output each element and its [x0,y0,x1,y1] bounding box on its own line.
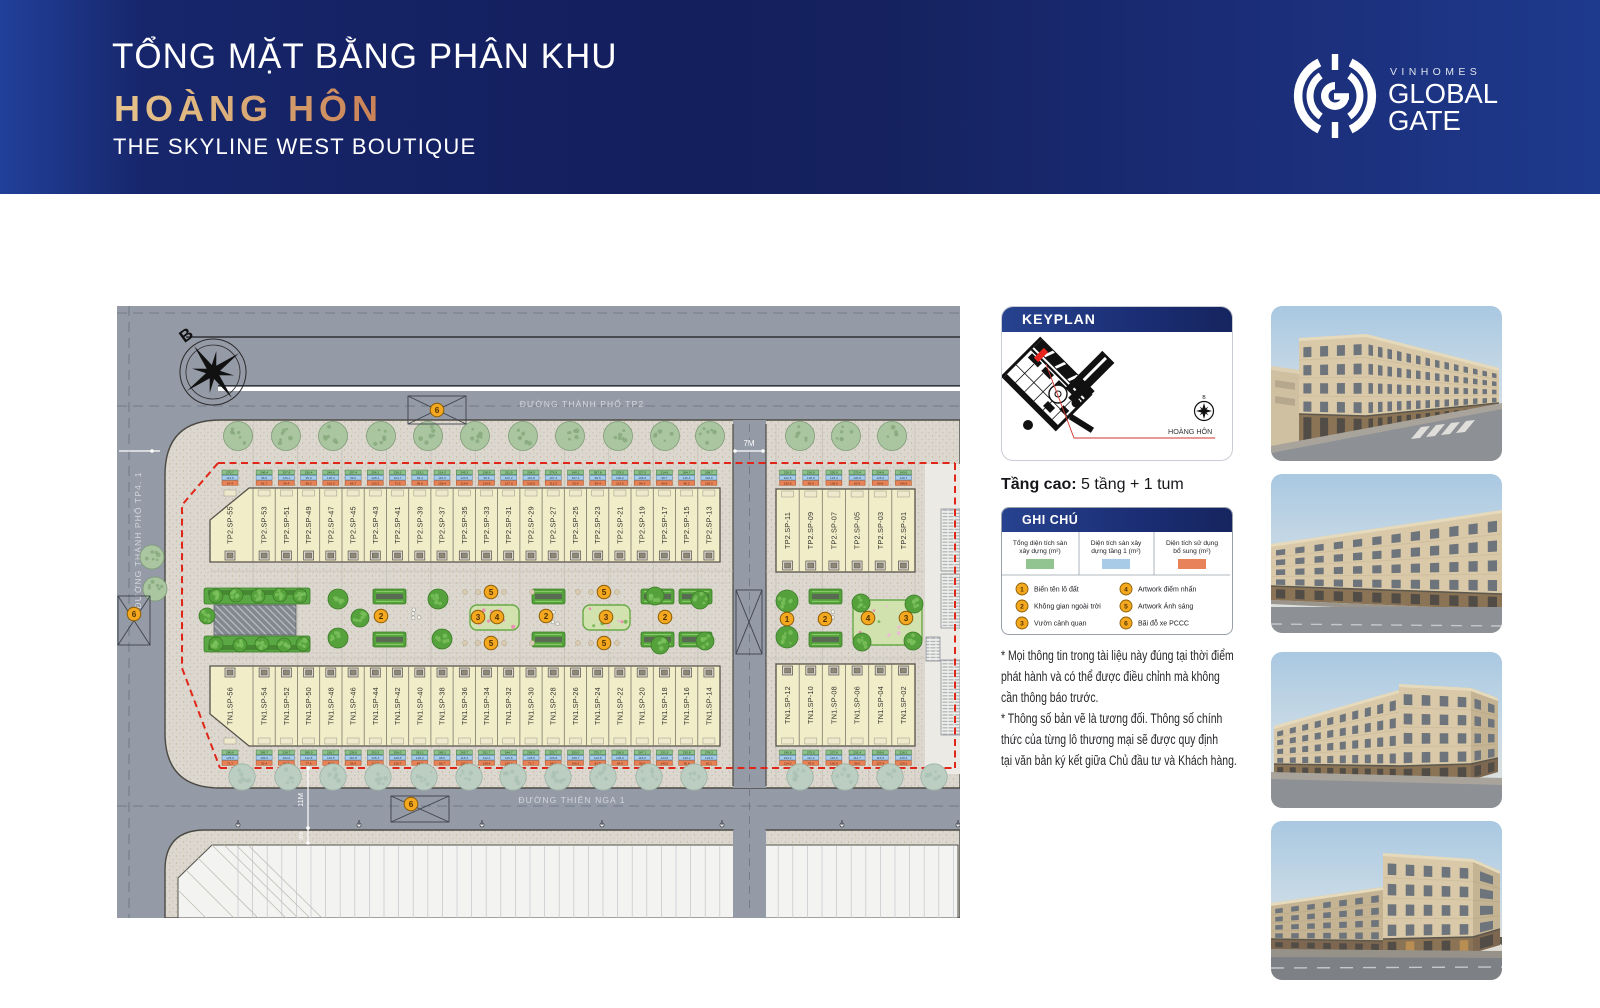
svg-text:TN1.SP-56: TN1.SP-56 [226,687,235,725]
svg-text:270.7: 270.7 [226,471,234,475]
svg-text:112.6: 112.6 [226,476,234,480]
svg-text:237.8: 237.8 [830,751,838,755]
svg-text:118.0: 118.0 [638,756,646,760]
svg-text:118.3: 118.3 [705,481,713,485]
svg-text:99.4: 99.4 [417,476,423,480]
svg-text:123.0: 123.0 [705,756,713,760]
svg-text:267.1: 267.1 [638,751,646,755]
svg-text:TN1.SP-04: TN1.SP-04 [876,686,885,724]
svg-text:246.4: 246.4 [260,471,268,475]
svg-text:128.9: 128.9 [807,476,815,480]
svg-text:243.0: 243.0 [900,471,908,475]
svg-text:133.6: 133.6 [527,481,535,485]
svg-text:TP2.SP-21: TP2.SP-21 [615,506,624,544]
svg-text:TN1.SP-14: TN1.SP-14 [704,687,713,725]
svg-text:66.7: 66.7 [350,481,356,485]
svg-text:TN1.SP-26: TN1.SP-26 [571,687,580,725]
svg-text:115.3: 115.3 [327,481,335,485]
svg-text:210.5: 210.5 [784,471,792,475]
svg-text:TN1.SP-48: TN1.SP-48 [326,687,335,725]
svg-text:2: 2 [823,615,828,624]
svg-text:TP2.SP-29: TP2.SP-29 [527,506,536,544]
svg-text:244.7: 244.7 [505,751,513,755]
svg-text:TN1.SP-16: TN1.SP-16 [682,687,691,725]
svg-text:2: 2 [663,613,668,622]
svg-text:4: 4 [1124,586,1128,593]
svg-text:5: 5 [1124,603,1128,610]
svg-text:TP2.SP-17: TP2.SP-17 [660,506,669,544]
svg-text:255.0: 255.0 [572,751,580,755]
svg-text:98.0: 98.0 [417,481,423,485]
svg-text:230.4: 230.4 [305,471,313,475]
svg-text:100.6: 100.6 [830,761,838,765]
svg-text:Bãi đỗ xe PCCC: Bãi đỗ xe PCCC [1138,618,1189,627]
svg-text:235.8: 235.8 [683,751,691,755]
svg-text:TP2.SP-03: TP2.SP-03 [876,512,885,550]
svg-text:TP2.SP-31: TP2.SP-31 [504,506,513,544]
svg-text:124.6: 124.6 [661,756,669,760]
svg-text:118.9: 118.9 [705,476,713,480]
svg-text:Vườn cảnh quan: Vườn cảnh quan [1034,620,1087,627]
svg-text:102.6: 102.6 [283,756,291,760]
svg-text:111.2: 111.2 [807,756,815,760]
svg-text:Diện tích sử dụng: Diện tích sử dụng [1166,539,1218,547]
svg-text:1: 1 [785,615,790,624]
svg-text:275.0: 275.0 [807,751,815,755]
svg-text:120.2: 120.2 [683,756,691,760]
svg-text:55.4: 55.4 [261,761,267,765]
svg-text:ĐƯỜNG THÀNH PHỐ TP2: ĐƯỜNG THÀNH PHỐ TP2 [520,398,644,409]
svg-text:102.5: 102.5 [784,476,792,480]
svg-text:78.0: 78.0 [808,761,814,765]
svg-text:61.7: 61.7 [261,481,267,485]
svg-text:TP2.SP-11: TP2.SP-11 [783,512,792,549]
svg-text:279.3: 279.3 [616,471,624,475]
svg-text:TN1.SP-34: TN1.SP-34 [482,687,491,725]
svg-text:233.1: 233.1 [416,471,424,475]
svg-text:56.4: 56.4 [283,481,289,485]
svg-text:112.3: 112.3 [549,481,557,485]
svg-text:130.6: 130.6 [784,481,792,485]
svg-text:Diện tích sàn xây: Diện tích sàn xây [1091,540,1142,547]
svg-text:TP2.SP-51: TP2.SP-51 [282,506,291,544]
svg-text:67.4: 67.4 [227,481,233,485]
svg-text:275.4: 275.4 [853,471,861,475]
svg-text:TP2.SP-55: TP2.SP-55 [226,506,235,544]
svg-text:71.7: 71.7 [227,761,233,765]
svg-text:278.3: 278.3 [705,751,713,755]
svg-text:236.9: 236.9 [527,751,535,755]
svg-text:216.7: 216.7 [327,751,335,755]
svg-text:TN1.SP-02: TN1.SP-02 [899,686,908,724]
svg-text:TN1.SP-50: TN1.SP-50 [304,687,313,725]
svg-text:285.9: 285.9 [305,751,313,755]
svg-text:11M: 11M [296,793,305,807]
svg-text:113.7: 113.7 [853,756,861,760]
svg-text:236.0: 236.0 [616,751,624,755]
svg-text:5: 5 [602,588,607,597]
svg-text:118.3: 118.3 [461,756,469,760]
svg-text:128.4: 128.4 [438,481,446,485]
svg-text:TP2.SP-41: TP2.SP-41 [393,506,402,544]
svg-text:98.5: 98.5 [854,761,860,765]
svg-text:TN1.SP-24: TN1.SP-24 [593,687,602,725]
svg-text:Không gian ngoài trời: Không gian ngoài trời [1034,603,1101,610]
svg-text:ĐƯỜNG THÀNH PHỐ TP4. 1: ĐƯỜNG THÀNH PHỐ TP4. 1 [132,471,143,608]
svg-text:261.1: 261.1 [416,751,424,755]
svg-text:113.8: 113.8 [594,756,602,760]
svg-text:136.6: 136.6 [830,481,838,485]
svg-text:TP2.SP-05: TP2.SP-05 [853,512,862,550]
svg-text:5: 5 [489,639,494,648]
svg-text:285.7: 285.7 [260,751,268,755]
svg-text:126.3: 126.3 [371,756,379,760]
svg-text:77.6: 77.6 [306,761,312,765]
svg-text:128.7: 128.7 [394,761,402,765]
svg-text:5: 5 [602,639,607,648]
svg-text:TN1.SP-22: TN1.SP-22 [615,687,624,725]
svg-text:Biển tên lô đất: Biển tên lô đất [1034,584,1079,593]
svg-text:TP2.SP-45: TP2.SP-45 [349,506,358,544]
svg-text:236.3: 236.3 [394,471,402,475]
svg-text:95.9: 95.9 [306,476,312,480]
svg-text:139.4: 139.4 [483,761,491,765]
svg-text:103.8: 103.8 [549,756,557,760]
svg-text:116.0: 116.0 [830,756,838,760]
svg-text:104.2: 104.2 [784,756,792,760]
svg-text:110.8: 110.8 [349,756,357,760]
svg-text:68.6: 68.6 [661,481,667,485]
svg-text:TP2.SP-23: TP2.SP-23 [593,506,602,544]
svg-text:264.7: 264.7 [683,471,691,475]
svg-text:86.4: 86.4 [639,481,645,485]
svg-text:3M: 3M [299,832,305,840]
svg-text:120.7: 120.7 [900,476,908,480]
svg-text:109.9: 109.9 [260,756,268,760]
svg-text:4: 4 [866,614,871,623]
svg-text:126.8: 126.8 [483,481,491,485]
svg-text:120.3: 120.3 [900,756,908,760]
svg-text:Artwork Ánh sáng: Artwork Ánh sáng [1138,601,1193,610]
svg-text:TN1.SP-40: TN1.SP-40 [415,687,424,725]
svg-text:256.0: 256.0 [394,751,402,755]
svg-text:107.1: 107.1 [572,476,580,480]
svg-text:TN1.SP-10: TN1.SP-10 [806,686,815,724]
svg-text:102.2: 102.2 [505,476,513,480]
svg-text:114.0: 114.0 [784,761,792,765]
svg-text:230.0: 230.0 [830,471,838,475]
svg-text:245.3: 245.3 [460,471,468,475]
svg-text:133.2: 133.2 [371,481,379,485]
svg-text:TN1.SP-44: TN1.SP-44 [371,687,380,725]
svg-text:100.8: 100.8 [853,476,861,480]
svg-text:125.0: 125.0 [876,476,884,480]
svg-text:TP2.SP-53: TP2.SP-53 [260,506,269,544]
svg-text:238.7: 238.7 [283,751,291,755]
svg-text:259.6: 259.6 [876,751,884,755]
svg-text:222.7: 222.7 [549,751,557,755]
svg-text:211.9: 211.9 [505,471,513,475]
svg-text:68.7: 68.7 [439,761,445,765]
svg-text:240.8: 240.8 [784,751,792,755]
svg-text:TP2.SP-35: TP2.SP-35 [460,506,469,544]
svg-text:115.4: 115.4 [683,476,691,480]
svg-text:106.1: 106.1 [572,761,580,765]
svg-text:127.4: 127.4 [876,761,884,765]
svg-text:98.6: 98.6 [483,476,489,480]
svg-text:5: 5 [489,588,494,597]
svg-text:TP2.SP-27: TP2.SP-27 [549,506,558,544]
svg-text:105.0: 105.0 [616,756,624,760]
svg-text:104.7: 104.7 [394,476,402,480]
svg-text:128.2: 128.2 [371,476,379,480]
svg-text:TP2.SP-37: TP2.SP-37 [438,506,447,544]
svg-text:240.2: 240.2 [572,471,580,475]
svg-text:287.8: 287.8 [594,471,602,475]
svg-text:289.7: 289.7 [705,471,713,475]
svg-text:59.4: 59.4 [595,481,601,485]
svg-text:TP2.SP-13: TP2.SP-13 [704,506,713,544]
svg-text:112.8: 112.8 [305,756,313,760]
svg-text:83.9: 83.9 [854,481,860,485]
svg-text:TN1.SP-42: TN1.SP-42 [393,687,402,725]
svg-text:TP2.SP-43: TP2.SP-43 [371,506,380,544]
svg-text:112.2: 112.2 [483,756,491,760]
svg-text:125.6: 125.6 [226,756,234,760]
svg-text:6: 6 [1124,620,1128,627]
svg-text:3: 3 [604,613,609,622]
svg-text:249.6: 249.6 [327,471,335,475]
svg-text:96.5: 96.5 [439,756,445,760]
svg-text:214.2: 214.2 [438,471,446,475]
svg-text:110.8: 110.8 [527,476,535,480]
svg-text:TN1.SP-52: TN1.SP-52 [282,687,291,725]
svg-text:218.1: 218.1 [900,751,908,755]
svg-text:129.1: 129.1 [900,761,908,765]
svg-text:128.3: 128.3 [327,476,335,480]
svg-text:115.8: 115.8 [505,756,513,760]
svg-text:TN1.SP-38: TN1.SP-38 [438,687,447,725]
svg-text:B: B [1202,395,1206,401]
svg-text:TN1.SP-08: TN1.SP-08 [829,686,838,724]
svg-text:72.5: 72.5 [394,481,400,485]
svg-text:128.6: 128.6 [527,756,535,760]
svg-text:84.5: 84.5 [617,761,623,765]
svg-text:TN1.SP-46: TN1.SP-46 [349,687,358,725]
svg-text:65.9: 65.9 [808,481,814,485]
svg-text:TN1.SP-06: TN1.SP-06 [853,686,862,724]
svg-text:140.5: 140.5 [661,761,669,765]
svg-text:Artwork điểm nhấn: Artwork điểm nhấn [1138,584,1196,593]
svg-text:71.7: 71.7 [528,761,534,765]
svg-text:116.0: 116.0 [438,476,446,480]
svg-text:4: 4 [495,613,500,622]
svg-text:6: 6 [435,406,440,415]
svg-text:228.9: 228.9 [349,751,357,755]
svg-text:TP2.SP-01: TP2.SP-01 [899,512,908,550]
svg-text:256.1: 256.1 [371,471,379,475]
svg-text:257.9: 257.9 [283,471,291,475]
svg-text:6: 6 [409,800,414,809]
svg-text:xây dựng (m²): xây dựng (m²) [1019,548,1060,555]
svg-text:bổ sung (m²): bổ sung (m²) [1173,547,1210,555]
svg-text:227.0: 227.0 [638,471,646,475]
svg-text:107.4: 107.4 [549,476,557,480]
svg-text:1: 1 [1020,586,1024,593]
svg-text:115.9: 115.9 [876,756,884,760]
svg-text:285.1: 285.1 [438,751,446,755]
svg-text:126.1: 126.1 [283,476,291,480]
svg-text:86.2: 86.2 [684,481,690,485]
svg-text:214.9: 214.9 [661,471,669,475]
svg-text:234.8: 234.8 [876,471,884,475]
svg-text:TP2.SP-47: TP2.SP-47 [326,506,335,544]
svg-text:2: 2 [379,612,384,621]
svg-text:126.2: 126.2 [416,756,424,760]
svg-text:98.5: 98.5 [261,476,267,480]
svg-text:TP2.SP-15: TP2.SP-15 [682,506,691,544]
svg-text:108.9: 108.9 [638,476,646,480]
svg-text:231.4: 231.4 [853,751,861,755]
svg-text:56.9: 56.9 [350,761,356,765]
svg-text:TN1.SP-32: TN1.SP-32 [504,687,513,725]
svg-text:238.9: 238.9 [483,471,491,475]
svg-text:99.0: 99.0 [350,476,356,480]
svg-text:TN1.SP-20: TN1.SP-20 [638,687,647,725]
svg-text:216.6: 216.6 [807,471,815,475]
svg-text:83.1: 83.1 [706,761,712,765]
svg-text:TP2.SP-09: TP2.SP-09 [806,512,815,550]
svg-text:3: 3 [904,614,909,623]
svg-text:HOÀNG HÔN: HOÀNG HÔN [1168,427,1212,436]
svg-text:265.7: 265.7 [460,751,468,755]
svg-text:2: 2 [1020,603,1024,610]
svg-text:GATE: GATE [1388,105,1461,136]
svg-text:280.6: 280.6 [226,751,234,755]
svg-text:TN1.SP-18: TN1.SP-18 [660,687,669,725]
svg-text:TP2.SP-33: TP2.SP-33 [482,506,491,544]
svg-text:92.4: 92.4 [572,481,578,485]
svg-text:127.3: 127.3 [505,481,513,485]
svg-text:96.5: 96.5 [595,476,601,480]
svg-text:TP2.SP-07: TP2.SP-07 [829,512,838,550]
svg-text:TN1.SP-36: TN1.SP-36 [460,687,469,725]
svg-text:3: 3 [476,613,481,622]
svg-text:TP2.SP-39: TP2.SP-39 [415,506,424,544]
svg-text:ĐƯỜNG THIÊN NGA 1: ĐƯỜNG THIÊN NGA 1 [518,795,625,805]
svg-text:7M: 7M [743,439,754,448]
svg-text:6: 6 [132,610,137,619]
svg-text:257.4: 257.4 [349,471,357,475]
svg-text:119.5: 119.5 [327,756,335,760]
svg-text:100.7: 100.7 [572,756,580,760]
svg-text:98.7: 98.7 [661,476,667,480]
svg-text:253.3: 253.3 [371,751,379,755]
svg-text:68.2: 68.2 [306,481,312,485]
svg-text:123.4: 123.4 [830,476,838,480]
svg-text:VINHOMES: VINHOMES [1390,66,1481,78]
svg-text:TP2.SP-49: TP2.SP-49 [304,506,313,544]
svg-text:123.6: 123.6 [460,476,468,480]
svg-text:Tổng diện tích sàn: Tổng diện tích sàn [1013,539,1068,547]
svg-text:dựng tầng 1 (m²): dựng tầng 1 (m²) [1091,546,1141,555]
svg-text:119.6: 119.6 [461,481,469,485]
svg-text:113.5: 113.5 [616,481,624,485]
svg-text:276.9: 276.9 [549,471,557,475]
svg-text:251.7: 251.7 [483,751,491,755]
svg-text:2: 2 [544,612,549,621]
svg-text:80.8: 80.8 [877,481,883,485]
svg-text:108.8: 108.8 [394,756,402,760]
svg-text:TP2.SP-19: TP2.SP-19 [638,506,647,544]
svg-text:TN1.SP-54: TN1.SP-54 [260,687,269,725]
svg-text:231.5: 231.5 [661,751,669,755]
svg-text:254.5: 254.5 [527,471,535,475]
svg-text:TN1.SP-12: TN1.SP-12 [783,686,792,724]
svg-text:275.7: 275.7 [594,751,602,755]
svg-text:3: 3 [1020,620,1024,627]
svg-text:140.5: 140.5 [900,481,908,485]
svg-text:TP2.SP-25: TP2.SP-25 [571,506,580,544]
svg-text:100.2: 100.2 [616,476,624,480]
svg-text:TN1.SP-30: TN1.SP-30 [527,687,536,725]
svg-text:TN1.SP-28: TN1.SP-28 [549,687,558,725]
